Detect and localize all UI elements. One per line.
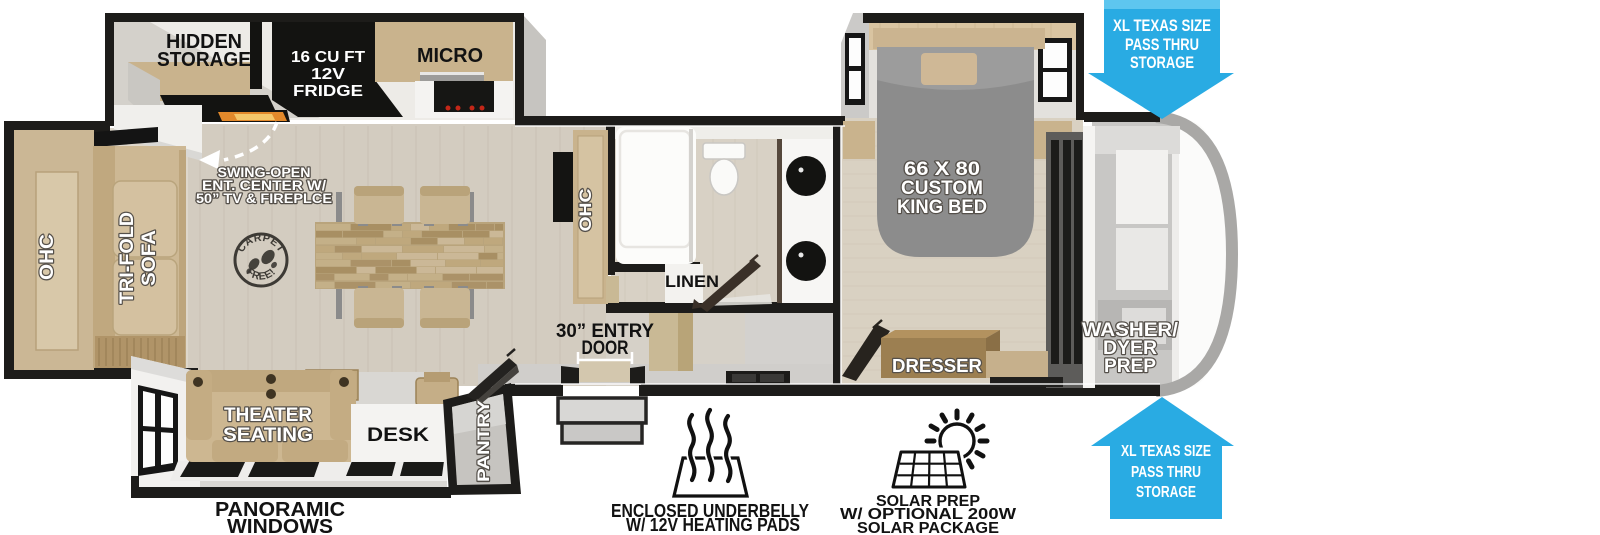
- svg-text:THEATER: THEATER: [224, 405, 312, 426]
- svg-text:KING BED: KING BED: [897, 197, 987, 218]
- svg-text:CUSTOM: CUSTOM: [901, 178, 983, 199]
- svg-text:OHC: OHC: [37, 234, 58, 280]
- svg-text:16 CU FT: 16 CU FT: [291, 49, 365, 66]
- svg-text:STORAGE: STORAGE: [157, 49, 251, 71]
- svg-text:LINEN: LINEN: [665, 272, 719, 291]
- svg-text:PANTRY: PANTRY: [474, 399, 493, 482]
- svg-text:PREP: PREP: [1104, 356, 1156, 377]
- svg-text:STORAGE: STORAGE: [1136, 484, 1196, 501]
- svg-text:FRIDGE: FRIDGE: [293, 83, 363, 100]
- svg-text:STORAGE: STORAGE: [1130, 53, 1194, 72]
- svg-text:TRI-FOLD: TRI-FOLD: [117, 212, 138, 304]
- svg-text:DOOR: DOOR: [582, 338, 629, 359]
- svg-text:50” TV & FIREPLCE: 50” TV & FIREPLCE: [196, 191, 332, 206]
- svg-text:W/ 12V HEATING PADS: W/ 12V HEATING PADS: [626, 515, 800, 535]
- svg-text:SOLAR PACKAGE: SOLAR PACKAGE: [857, 520, 999, 535]
- svg-text:MICRO: MICRO: [417, 45, 483, 67]
- svg-text:PASS THRU: PASS THRU: [1125, 35, 1199, 54]
- svg-text:DRESSER: DRESSER: [892, 356, 982, 376]
- svg-text:XL TEXAS SIZE: XL TEXAS SIZE: [1121, 443, 1211, 460]
- svg-text:OHC: OHC: [576, 189, 595, 232]
- svg-text:SEATING: SEATING: [223, 425, 313, 446]
- svg-text:WINDOWS: WINDOWS: [227, 516, 333, 535]
- svg-text:DESK: DESK: [367, 425, 429, 446]
- svg-text:PASS THRU: PASS THRU: [1131, 464, 1201, 481]
- svg-text:SOFA: SOFA: [139, 230, 160, 286]
- svg-text:66 X 80: 66 X 80: [904, 159, 980, 180]
- svg-text:12V: 12V: [311, 66, 345, 83]
- svg-text:XL TEXAS SIZE: XL TEXAS SIZE: [1113, 16, 1211, 35]
